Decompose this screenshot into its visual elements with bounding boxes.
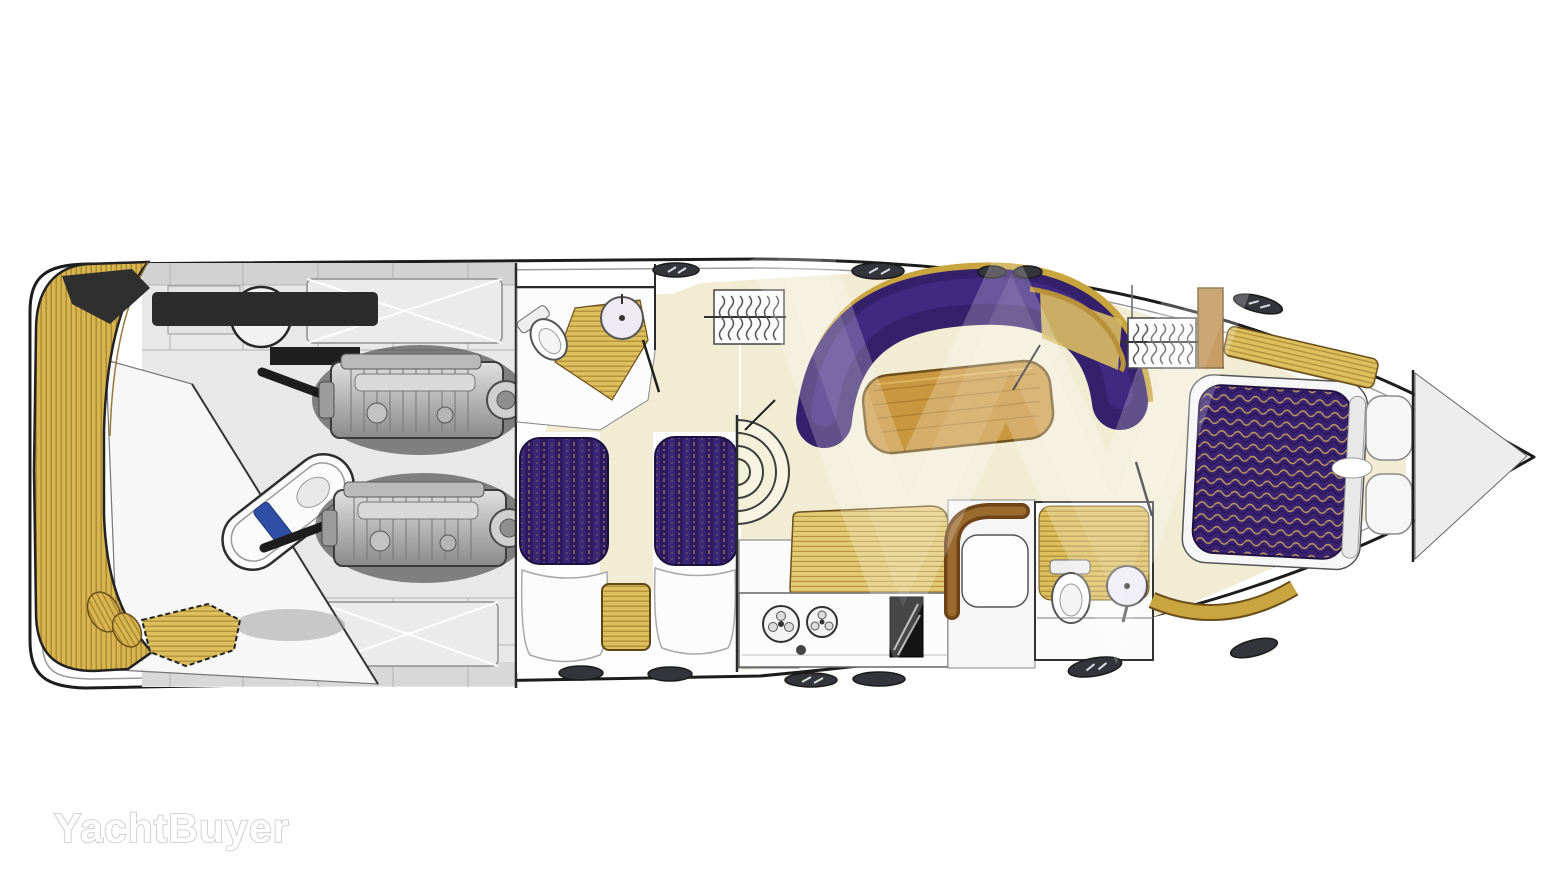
- starboard-engine: [315, 473, 531, 583]
- nightstand: [602, 584, 650, 650]
- port-engine: [312, 345, 528, 455]
- berth-stbd: [655, 437, 737, 565]
- dinette: [948, 500, 1035, 668]
- dinette-table: [962, 535, 1028, 607]
- pillow-port: [522, 570, 608, 662]
- aft-head: [516, 264, 659, 430]
- yacht-floorplan-image: YachtBuyer: [0, 0, 1542, 884]
- berth-port: [520, 438, 608, 564]
- deck-plan-svg: YachtBuyer: [0, 0, 1542, 884]
- watermark-text: YachtBuyer: [54, 805, 290, 851]
- bow-locker: [1415, 373, 1527, 559]
- master-berth: [1192, 384, 1353, 560]
- pillow-stbd: [655, 568, 736, 654]
